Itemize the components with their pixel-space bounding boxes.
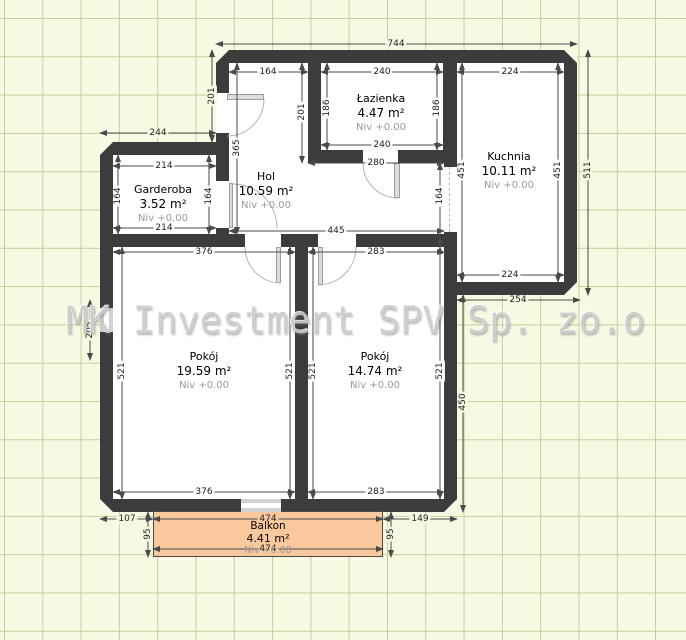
dimension-label: 164 [435,185,445,206]
dimension-label: 186 [432,97,442,118]
dimension-label: 521 [435,360,445,381]
watermark-text: MK Investment SPV Sp. zo.o [66,299,645,342]
kuchnia-passage-floor[interactable] [444,167,457,232]
dimension-label: 451 [457,159,467,180]
floor-plan-canvas: Łazienka 4.47 m² Niv +0.00 Kuchnia 10.11… [0,0,686,640]
room-hol-lower-floor[interactable] [308,163,444,234]
room-label-pokoj1: Pokój 19.59 m² Niv +0.00 [177,350,232,392]
room-name: Balkon [244,520,292,532]
dimension-label: 240 [371,140,392,150]
kuchnia-passage-line [449,167,450,232]
dimension-label: 244 [147,128,168,138]
dimension-label: 280 [365,158,386,168]
garderoba-door-opening [216,181,229,228]
balkon-door-window [241,499,281,512]
garderoba-door-leaf [229,183,233,228]
dimension-label: 240 [371,67,392,77]
room-label-balkon: Balkon 4.41 m² Niv +0.00 [244,520,292,557]
room-level: Niv +0.00 [244,545,292,557]
dimension-label: 744 [385,39,406,49]
dimension-label: 451 [553,159,563,180]
room-name: Łazienka [356,92,406,106]
dimension-label: 376 [193,247,214,257]
dimension-label: 107 [116,514,137,524]
dimension-label: 95 [386,526,396,541]
dimension-label: 511 [583,159,593,180]
room-label-garderoba: Garderoba 3.52 m² Niv +0.00 [134,183,192,225]
dimension-label: 164 [204,185,214,206]
room-name: Pokój [348,350,403,364]
room-label-kuchnia: Kuchnia 10.11 m² Niv +0.00 [482,150,537,192]
room-level: Niv +0.00 [348,379,403,392]
room-level: Niv +0.00 [239,199,294,212]
dimension-label: 149 [409,514,430,524]
entry-door-leaf [227,94,264,100]
room-area: 4.47 m² [356,106,406,121]
dimension-label: 224 [499,270,520,280]
room-level: Niv +0.00 [356,121,406,134]
room-area: 10.11 m² [482,164,537,179]
dimension-label: 95 [143,526,153,541]
pokoj1-door-leaf [276,247,281,283]
lazienka-door-leaf [394,163,400,198]
room-area: 14.74 m² [348,364,403,379]
dimension-label: 521 [117,360,127,381]
dimension-label: 376 [193,487,214,497]
pokoj1-door-opening [245,234,281,247]
room-area: 19.59 m² [177,364,232,379]
dimension-label: 445 [325,226,346,236]
dimension-label: 283 [365,247,386,257]
dimension-label: 365 [232,137,242,158]
room-level: Niv +0.00 [482,179,537,192]
pokoj2-door-leaf [318,247,323,285]
room-level: Niv +0.00 [177,379,232,392]
dimension-label: 521 [285,360,295,381]
room-area: 10.59 m² [239,184,294,199]
room-label-pokoj2: Pokój 14.74 m² Niv +0.00 [348,350,403,392]
room-name: Garderoba [134,183,192,197]
room-label-lazienka: Łazienka 4.47 m² Niv +0.00 [356,92,406,134]
dimension-label: 201 [297,101,307,122]
room-label-hol: Hol 10.59 m² Niv +0.00 [239,170,294,212]
room-area: 4.41 m² [244,532,292,545]
room-level: Niv +0.00 [134,212,192,225]
dimension-label: 201 [207,85,217,106]
dimension-label: 164 [113,185,123,206]
dimension-label: 283 [365,487,386,497]
dimension-label: 164 [257,67,278,77]
room-name: Pokój [177,350,232,364]
dimension-label: 521 [308,360,318,381]
dimension-label: 186 [322,97,332,118]
room-area: 3.52 m² [134,197,192,212]
dimension-label: 224 [499,67,520,77]
dimension-label: 450 [458,391,468,412]
dimension-label: 214 [153,161,174,171]
room-name: Hol [239,170,294,184]
room-name: Kuchnia [482,150,537,164]
